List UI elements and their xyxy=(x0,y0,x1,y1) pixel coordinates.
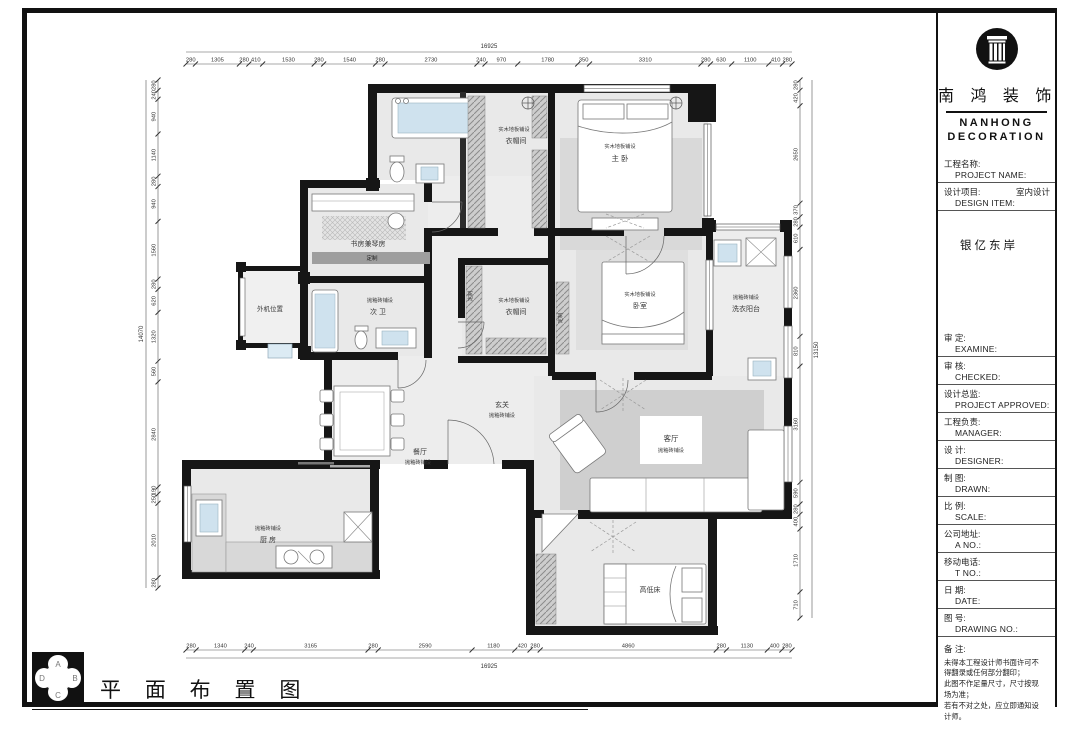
title-block: 南 鸿 装 饰 NANHONG DECORATION 工程名称:PROJECT … xyxy=(936,13,1055,707)
svg-text:抛釉砖铺设: 抛釉砖铺设 xyxy=(255,524,281,532)
company-name-en-line1: NANHONG xyxy=(938,117,1055,131)
title-block-row: 图 号:DRAWING NO.: xyxy=(938,609,1055,637)
dimension-label: 1140 xyxy=(152,149,158,161)
field-label-en: DATE: xyxy=(944,596,1050,606)
field-label-cn: 图 号: xyxy=(944,612,1050,624)
remarks-line: 此图不作足量尺寸，尺寸按现 xyxy=(944,679,1050,690)
compass-letter-d: D xyxy=(39,674,45,683)
dimension-label: 1540 xyxy=(343,58,356,64)
svg-text:餐厅: 餐厅 xyxy=(413,447,427,456)
project-name: 银亿东岸 xyxy=(938,211,1055,329)
svg-text:抛釉砖铺设: 抛釉砖铺设 xyxy=(489,411,515,419)
dimension-label: 970 xyxy=(497,58,507,64)
field-value: 室内设计 xyxy=(1016,186,1050,198)
dimension-label: 1710 xyxy=(794,554,800,567)
title-block-rows-top: 工程名称:PROJECT NAME:设计项目:室内设计DESIGN ITEM: xyxy=(938,155,1055,211)
elevation-index-symbol: A B C D xyxy=(32,652,84,709)
custom-label: 定制 xyxy=(366,254,378,262)
field-label-en: DRAWING NO.: xyxy=(944,624,1050,634)
dimension-label: 280 xyxy=(186,644,196,650)
company-name-en: NANHONG DECORATION xyxy=(938,117,1055,145)
dimension-label: 4860 xyxy=(622,644,635,650)
dimension-label: 2590 xyxy=(419,644,432,650)
dimension-label: 810 xyxy=(794,346,800,356)
dimension-label: 280 xyxy=(782,644,792,650)
dimension-label: 280 xyxy=(530,644,540,650)
dimension-label: 280 xyxy=(375,58,385,64)
remarks-line: 计师。 xyxy=(944,712,1050,723)
svg-text:书房兼琴房: 书房兼琴房 xyxy=(351,239,386,248)
floor-plan: 定制 xyxy=(0,0,1080,754)
dim-total-bottom: 16925 xyxy=(481,664,498,670)
dimension-label: 280 xyxy=(794,80,800,90)
compass-letter-a: A xyxy=(55,660,61,669)
svg-text:衣帽间: 衣帽间 xyxy=(506,136,527,145)
title-block-row: 工程名称:PROJECT NAME: xyxy=(938,155,1055,183)
dimension-label: 410 xyxy=(251,58,261,64)
svg-text:高低床: 高低床 xyxy=(640,585,661,594)
room-label-study: 书房兼琴房 xyxy=(351,239,386,248)
title-block-row: 制 图:DRAWN: xyxy=(938,469,1055,497)
svg-text:实木地板铺设: 实木地板铺设 xyxy=(498,125,529,133)
dimension-label: 1100 xyxy=(744,58,756,64)
field-label-cn: 公司地址: xyxy=(944,528,1050,540)
dimension-label: 1340 xyxy=(214,644,227,650)
field-label-cn: 工程名称: xyxy=(944,158,1050,170)
title-block-row: 比 例:SCALE: xyxy=(938,497,1055,525)
dimension-label: 280 xyxy=(701,58,711,64)
remarks-label: 备 注: xyxy=(944,643,1050,655)
dimension-label: 1180 xyxy=(487,644,499,650)
svg-text:玄关: 玄关 xyxy=(495,400,509,409)
title-block-rule xyxy=(946,111,1047,113)
field-label-cn: 移动电话: xyxy=(944,556,1050,568)
drawing-title: 平 面 布 置 图 xyxy=(100,674,309,704)
field-label-en: DESIGNER: xyxy=(944,456,1050,466)
dim-total-left: 14070 xyxy=(139,325,145,342)
svg-text:抛釉砖铺设: 抛釉砖铺设 xyxy=(405,458,431,466)
dimension-label: 400 xyxy=(770,644,780,650)
field-label-cn: 设计项目:室内设计 xyxy=(944,186,1050,198)
field-label-en: DESIGN ITEM: xyxy=(944,198,1050,208)
title-block-row: 公司地址:A NO.: xyxy=(938,525,1055,553)
dim-chain-top: 2801305280410153028015402802730240970178… xyxy=(184,58,795,67)
dimension-label: 1780 xyxy=(541,58,554,64)
custom-label-vertical-2: 定制 xyxy=(556,313,564,323)
svg-text:外机位置: 外机位置 xyxy=(257,304,284,313)
remarks-lines: 未得本工程设计师书面许可不得翻录或任何部分翻印；此图不作足量尺寸，尺寸按现场为准… xyxy=(944,658,1050,724)
dimension-label: 1130 xyxy=(741,644,753,650)
drawing-sheet: 定制 xyxy=(0,0,1080,754)
dimension-label: 280 xyxy=(314,58,324,64)
title-block-rows-main: 审 定:EXAMINE:审 核:CHECKED:设计总监:PROJECT APP… xyxy=(938,329,1055,637)
compass-letter-c: C xyxy=(55,691,61,700)
custom-label-vertical-1: 定制 xyxy=(466,291,474,301)
dim-chain-right: 2804202650370280610236081031605902804001… xyxy=(794,78,803,621)
field-label-en: PROJECT APPROVED: xyxy=(944,400,1050,410)
room-label-kids-room: 高低床 xyxy=(640,585,661,594)
dimension-label: 2840 xyxy=(152,428,158,441)
remarks-line: 若有不对之处，应立即通知设 xyxy=(944,701,1050,712)
title-block-row: 审 定:EXAMINE: xyxy=(938,329,1055,357)
svg-text:实木地板铺设: 实木地板铺设 xyxy=(604,142,635,150)
title-block-remarks: 备 注: 未得本工程设计师书面许可不得翻录或任何部分翻印；此图不作足量尺寸，尺寸… xyxy=(938,637,1055,724)
dimension-label: 240 xyxy=(152,90,158,100)
drawing-title-underline-1 xyxy=(32,705,588,707)
svg-text:卧室: 卧室 xyxy=(633,301,647,310)
dimension-label: 280 xyxy=(782,58,792,64)
field-label-cn: 审 核: xyxy=(944,360,1050,372)
dimension-label: 250 xyxy=(152,494,158,504)
dim-chain-left: 2802409401140280940156028062013205602840… xyxy=(152,78,161,591)
field-label-en: T NO.: xyxy=(944,568,1050,578)
field-label-en: MANAGER: xyxy=(944,428,1050,438)
dimension-label: 2360 xyxy=(794,286,800,299)
field-label-cn: 日 期: xyxy=(944,584,1050,596)
remarks-line: 场为准； xyxy=(944,690,1050,701)
title-block-row: 移动电话:T NO.: xyxy=(938,553,1055,581)
company-logo xyxy=(938,13,1055,76)
dimension-label: 2730 xyxy=(425,58,438,64)
svg-text:抛釉砖铺设: 抛釉砖铺设 xyxy=(733,293,759,301)
drawing-title-underline-2 xyxy=(32,709,588,710)
title-block-row: 工程负责:MANAGER: xyxy=(938,413,1055,441)
dimension-label: 620 xyxy=(152,296,158,306)
company-name-cn: 南 鸿 装 饰 xyxy=(938,82,1055,106)
svg-text:客厅: 客厅 xyxy=(664,433,679,443)
field-label-en: EXAMINE: xyxy=(944,344,1050,354)
dimension-label: 370 xyxy=(794,205,800,215)
room-label-ac-unit: 外机位置 xyxy=(257,304,284,313)
dimension-label: 940 xyxy=(152,112,158,122)
svg-text:主 卧: 主 卧 xyxy=(611,153,629,163)
field-label-en: PROJECT NAME: xyxy=(944,170,1050,180)
column-logo-icon xyxy=(975,27,1019,71)
dimension-label: 610 xyxy=(794,233,800,243)
field-label-en: CHECKED: xyxy=(944,372,1050,382)
field-label-cn: 审 定: xyxy=(944,332,1050,344)
dimension-label: 280 xyxy=(186,58,196,64)
remarks-line: 未得本工程设计师书面许可不 xyxy=(944,658,1050,669)
svg-text:抛釉砖铺设: 抛釉砖铺设 xyxy=(367,296,393,304)
title-block-row: 设 计:DESIGNER: xyxy=(938,441,1055,469)
field-label-cn: 比 例: xyxy=(944,500,1050,512)
dimension-label: 630 xyxy=(716,58,726,64)
dim-total-right: 13150 xyxy=(814,341,820,358)
dimension-label: 280 xyxy=(368,644,378,650)
dimension-label: 1320 xyxy=(152,330,158,343)
svg-text:实木地板铺设: 实木地板铺设 xyxy=(624,290,655,298)
dimension-label: 1560 xyxy=(152,244,158,257)
dimension-label: 240 xyxy=(476,58,486,64)
remarks-line: 得翻录或任何部分翻印； xyxy=(944,668,1050,679)
field-label-cn: 设 计: xyxy=(944,444,1050,456)
dimension-label: 3160 xyxy=(794,418,800,431)
svg-text:衣帽间: 衣帽间 xyxy=(506,307,527,316)
title-block-row: 设计项目:室内设计DESIGN ITEM: xyxy=(938,183,1055,211)
dimension-label: 560 xyxy=(152,367,158,377)
dimension-label: 240 xyxy=(244,644,254,650)
field-label-cn: 工程负责: xyxy=(944,416,1050,428)
dimension-label: 280 xyxy=(794,217,800,227)
svg-text:厨 房: 厨 房 xyxy=(260,535,276,544)
dimension-label: 410 xyxy=(771,58,781,64)
dimension-label: 420 xyxy=(518,644,528,650)
dimension-label: 2010 xyxy=(152,534,158,547)
dimension-label: 420 xyxy=(794,93,800,103)
title-block-row: 设计总监:PROJECT APPROVED: xyxy=(938,385,1055,413)
field-label-en: SCALE: xyxy=(944,512,1050,522)
field-label-cn: 制 图: xyxy=(944,472,1050,484)
dimension-label: 280 xyxy=(152,279,158,289)
field-label-cn: 设计总监: xyxy=(944,388,1050,400)
compass-icon: A B C D xyxy=(32,652,84,704)
dimension-label: 350 xyxy=(579,58,589,64)
dimension-label: 710 xyxy=(794,600,800,610)
dim-chain-bottom: 2801340240316528025901180420280486028011… xyxy=(184,644,795,653)
svg-text:抛釉砖铺设: 抛釉砖铺设 xyxy=(658,446,684,454)
svg-text:次 卫: 次 卫 xyxy=(370,307,386,316)
dimension-label: 280 xyxy=(152,578,158,588)
field-label-en: A NO.: xyxy=(944,540,1050,550)
dimension-label: 2650 xyxy=(794,148,800,161)
dimension-label: 590 xyxy=(794,488,800,498)
title-block-row: 日 期:DATE: xyxy=(938,581,1055,609)
dimension-label: 280 xyxy=(794,504,800,514)
svg-text:洗衣阳台: 洗衣阳台 xyxy=(732,304,760,313)
dimension-label: 3310 xyxy=(639,58,652,64)
title-block-row: 审 核:CHECKED: xyxy=(938,357,1055,385)
dimension-label: 280 xyxy=(239,58,249,64)
dimension-label: 400 xyxy=(794,517,800,527)
dim-total-top: 16925 xyxy=(481,44,498,50)
compass-letter-b: B xyxy=(72,674,77,683)
dimension-label: 280 xyxy=(152,80,158,90)
svg-text:实木地板铺设: 实木地板铺设 xyxy=(498,296,529,304)
field-label-en: DRAWN: xyxy=(944,484,1050,494)
dimension-label: 1305 xyxy=(211,58,224,64)
dimension-label: 1530 xyxy=(282,58,295,64)
dimension-label: 940 xyxy=(152,199,158,209)
dimension-label: 3165 xyxy=(304,644,317,650)
company-name-en-line2: DECORATION xyxy=(938,131,1055,145)
dimension-label: 280 xyxy=(717,644,727,650)
custom-cabinet: 定制 xyxy=(312,252,430,264)
dimension-label: 280 xyxy=(152,177,158,187)
